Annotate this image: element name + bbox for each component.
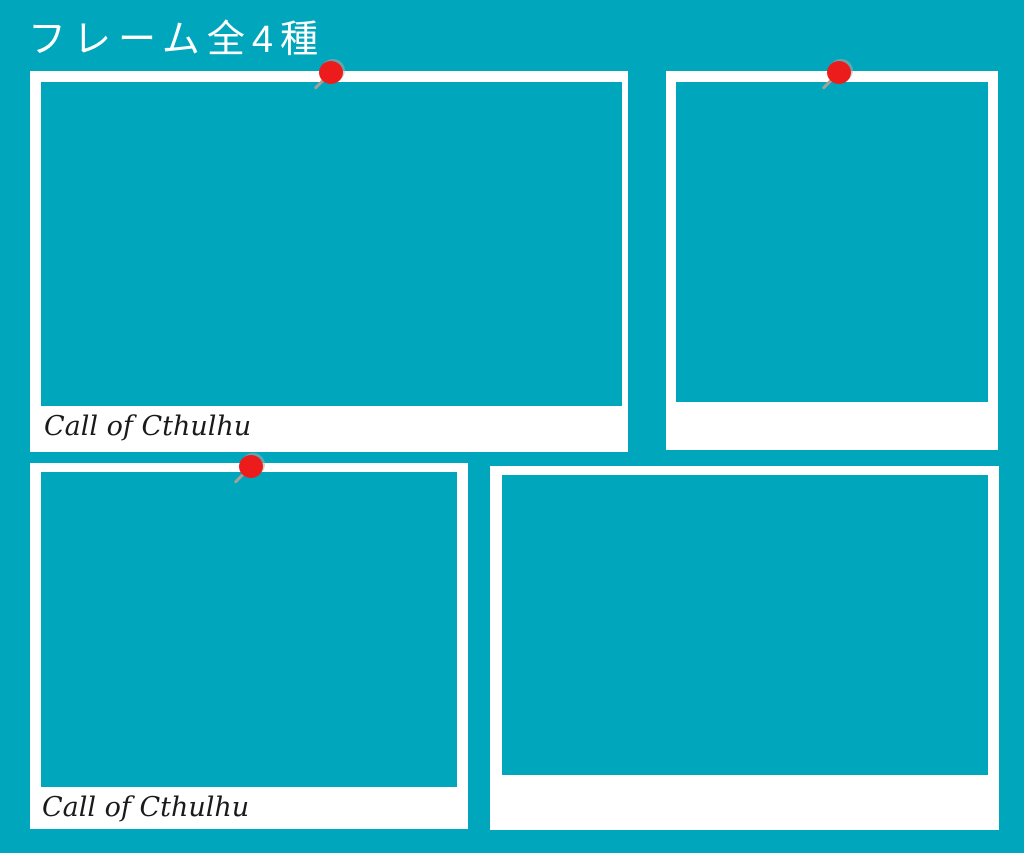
- photo-area: [41, 82, 622, 406]
- frame-showcase-image: フレーム全4種 Call of Cthulhu Call of Cthulhu: [0, 0, 1024, 853]
- frame-bottom-left: Call of Cthulhu: [30, 463, 468, 829]
- pin-head: [239, 455, 263, 478]
- photo-area: [502, 475, 988, 775]
- photo-area: [676, 82, 988, 402]
- pin-head: [319, 61, 343, 84]
- page-title: フレーム全4種: [28, 8, 325, 63]
- frame-top-right: [666, 71, 998, 450]
- caption-call-of-cthulhu: Call of Cthulhu: [44, 411, 251, 442]
- pin-head: [827, 61, 851, 84]
- frame-top-left: Call of Cthulhu: [30, 71, 628, 452]
- caption-call-of-cthulhu: Call of Cthulhu: [42, 792, 249, 823]
- photo-area: [41, 472, 457, 787]
- frame-bottom-right: [490, 466, 999, 830]
